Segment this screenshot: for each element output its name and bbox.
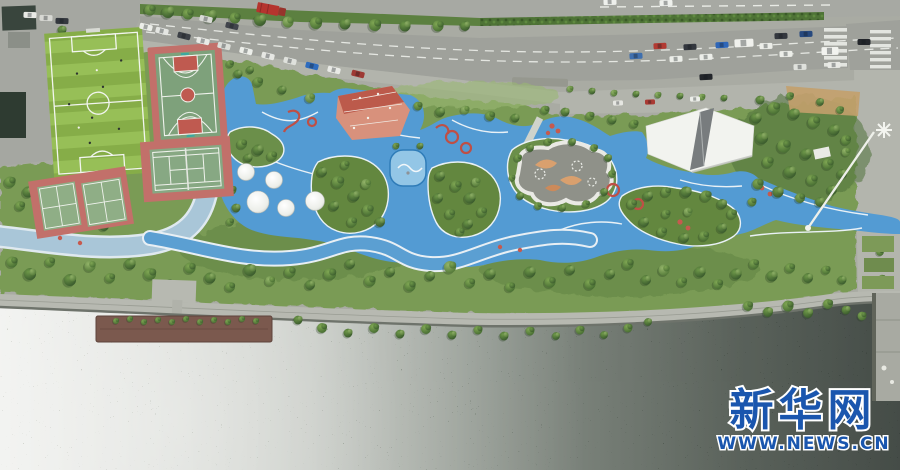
watermark-title: 新华网: [730, 385, 877, 436]
car: [734, 39, 753, 48]
garden-bed: [864, 258, 894, 272]
starburst-sculpture: [876, 122, 892, 138]
car: [759, 43, 772, 49]
car: [23, 12, 36, 18]
tennis-court: [140, 136, 234, 202]
basketball-court: [147, 42, 228, 147]
car: [683, 44, 696, 51]
car: [669, 56, 682, 63]
boat: [890, 380, 894, 384]
car: [613, 100, 623, 105]
car: [645, 99, 655, 104]
car: [690, 96, 700, 101]
plaza-patch: [152, 279, 197, 303]
car: [821, 47, 838, 55]
car: [653, 43, 666, 50]
car: [699, 74, 712, 81]
car: [793, 64, 806, 70]
soccer-field: [44, 25, 152, 181]
car: [629, 53, 642, 60]
aerial-photo-riverside-park: 新华网 www.news.cn: [0, 0, 900, 470]
small-building: [8, 32, 30, 48]
car: [39, 15, 52, 21]
car: [699, 54, 712, 61]
car: [659, 0, 672, 6]
garden-bed: [862, 276, 894, 289]
watermark-url: www.news.cn: [717, 434, 890, 454]
car: [603, 0, 616, 5]
car: [715, 42, 728, 49]
watermark: 新华网 www.news.cn: [717, 385, 890, 454]
shed-roof-2: [0, 92, 26, 138]
scene-canvas: 新华网 www.news.cn: [0, 0, 900, 470]
boat: [882, 366, 887, 371]
car: [774, 33, 787, 39]
car: [55, 18, 68, 24]
splash-pond: [390, 150, 426, 186]
car: [799, 31, 812, 37]
car: [779, 51, 792, 57]
garden-bed: [862, 236, 894, 252]
car: [827, 62, 840, 68]
car: [858, 39, 871, 45]
